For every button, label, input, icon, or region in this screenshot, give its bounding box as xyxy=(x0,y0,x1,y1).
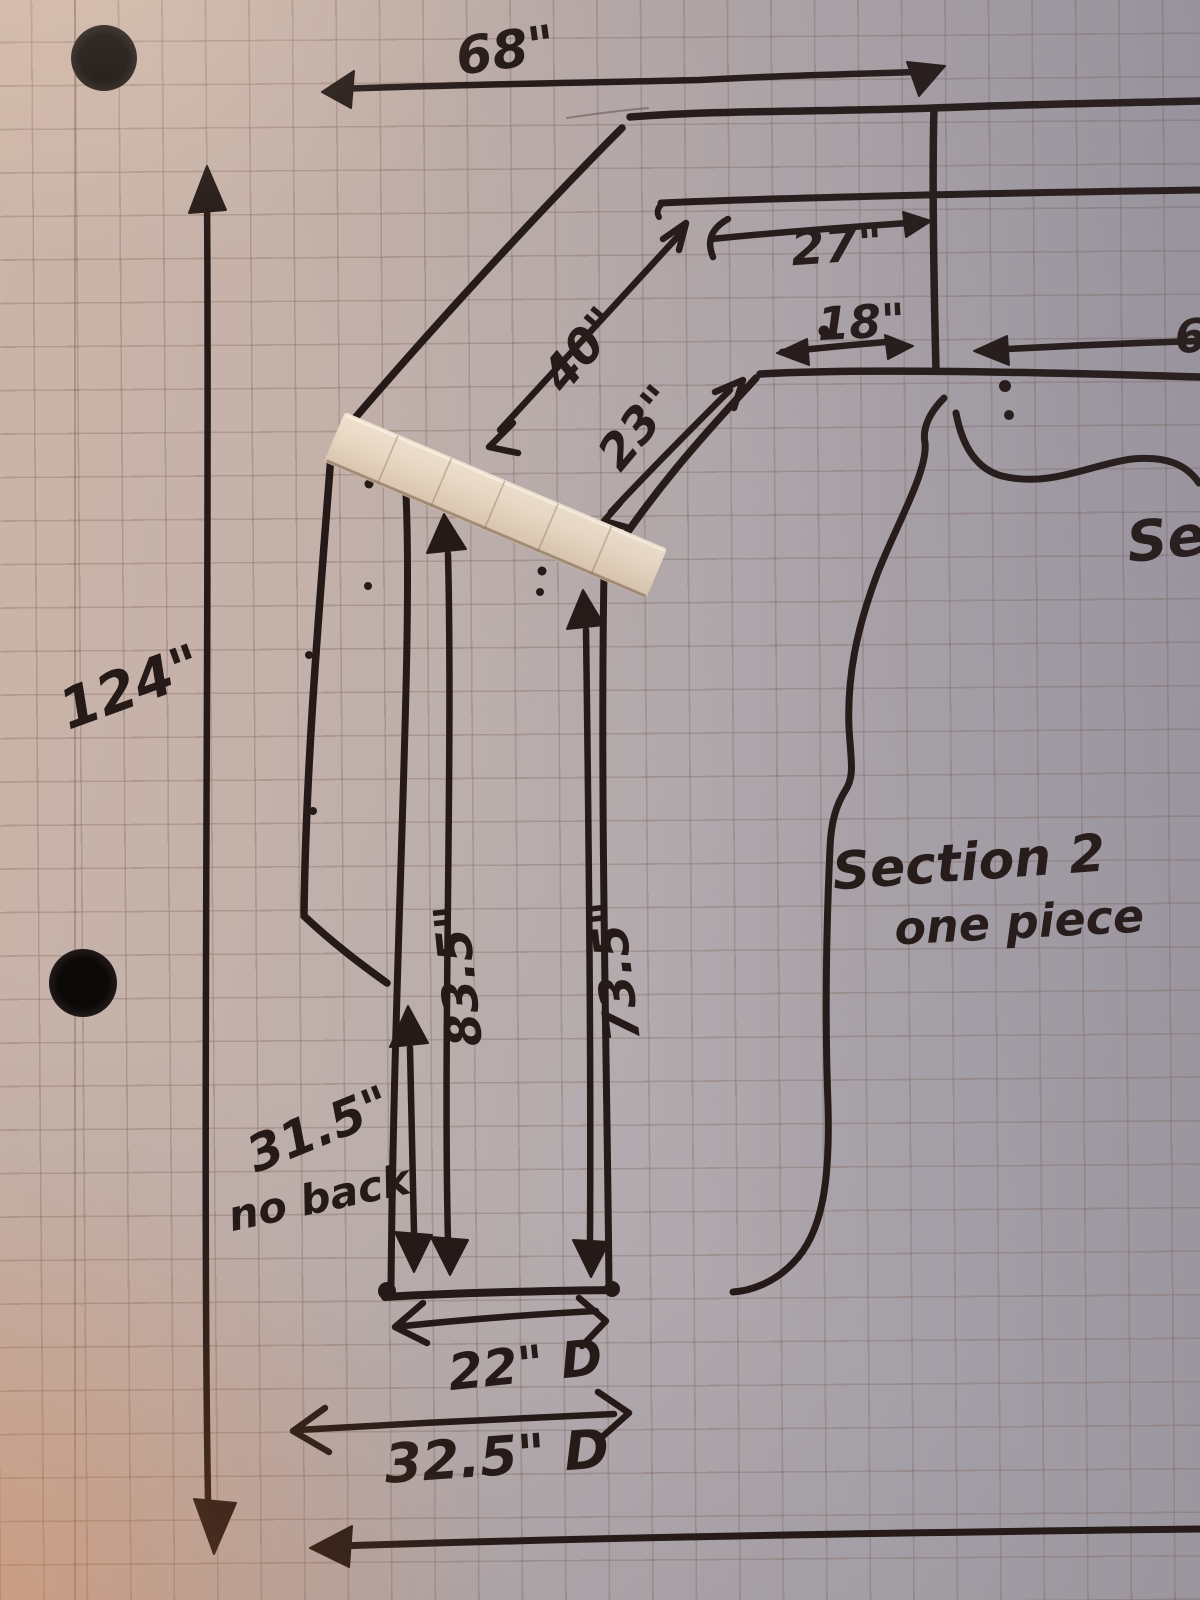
arrowhead-left-icon xyxy=(777,339,809,365)
label-18: 18" xyxy=(816,293,907,352)
arrowhead-right-icon xyxy=(907,62,945,96)
arrowhead-down-icon xyxy=(431,1237,468,1275)
sketch-photo: 124" 68" 27" 18" 40" 23" 31.5" no back 8… xyxy=(0,0,1200,1600)
right-section-brace-partial xyxy=(956,413,1199,483)
arrowhead-down-icon xyxy=(194,1499,236,1554)
label-83-5: 83.5" xyxy=(423,901,494,1050)
label-68: 68" xyxy=(452,15,559,88)
dim-bottom-edge xyxy=(310,1526,1200,1567)
arrowhead-up-icon xyxy=(567,590,604,629)
label-22-d: 22" D xyxy=(445,1328,605,1402)
label-6-partial: 6 xyxy=(1172,308,1200,365)
hole-punch-top xyxy=(71,25,137,91)
arrowhead-down-icon xyxy=(573,1240,609,1277)
label-27: 27" xyxy=(789,215,884,277)
arrowhead-up-icon xyxy=(189,166,226,213)
arrowhead-right-icon xyxy=(903,212,931,237)
label-40: 40" xyxy=(530,297,633,404)
arrowhead-up-icon xyxy=(427,514,466,553)
sketch-drawing: 124" 68" 27" 18" 40" 23" 31.5" no back 8… xyxy=(0,0,1200,1600)
hole-punch-bottom xyxy=(49,949,117,1017)
label-23: 23" xyxy=(587,375,689,481)
dim-right-partial xyxy=(974,336,1200,365)
dim-83-5 xyxy=(427,514,468,1275)
label-section-2: Section 2 xyxy=(830,824,1107,903)
plan-outline xyxy=(304,101,1200,1299)
arrowhead-left-icon xyxy=(310,1526,352,1567)
arrowhead-left-icon xyxy=(322,71,354,108)
label-one-piece: one piece xyxy=(893,889,1145,956)
arrowhead-down-icon xyxy=(395,1232,432,1272)
label-se-partial: Se xyxy=(1124,503,1200,576)
arrowhead-left-icon xyxy=(974,336,1009,365)
dim-68 xyxy=(322,62,945,108)
dim-124 xyxy=(189,166,236,1554)
label-124: 124" xyxy=(51,632,210,743)
label-32-5-d: 32.5" D xyxy=(382,1417,611,1496)
